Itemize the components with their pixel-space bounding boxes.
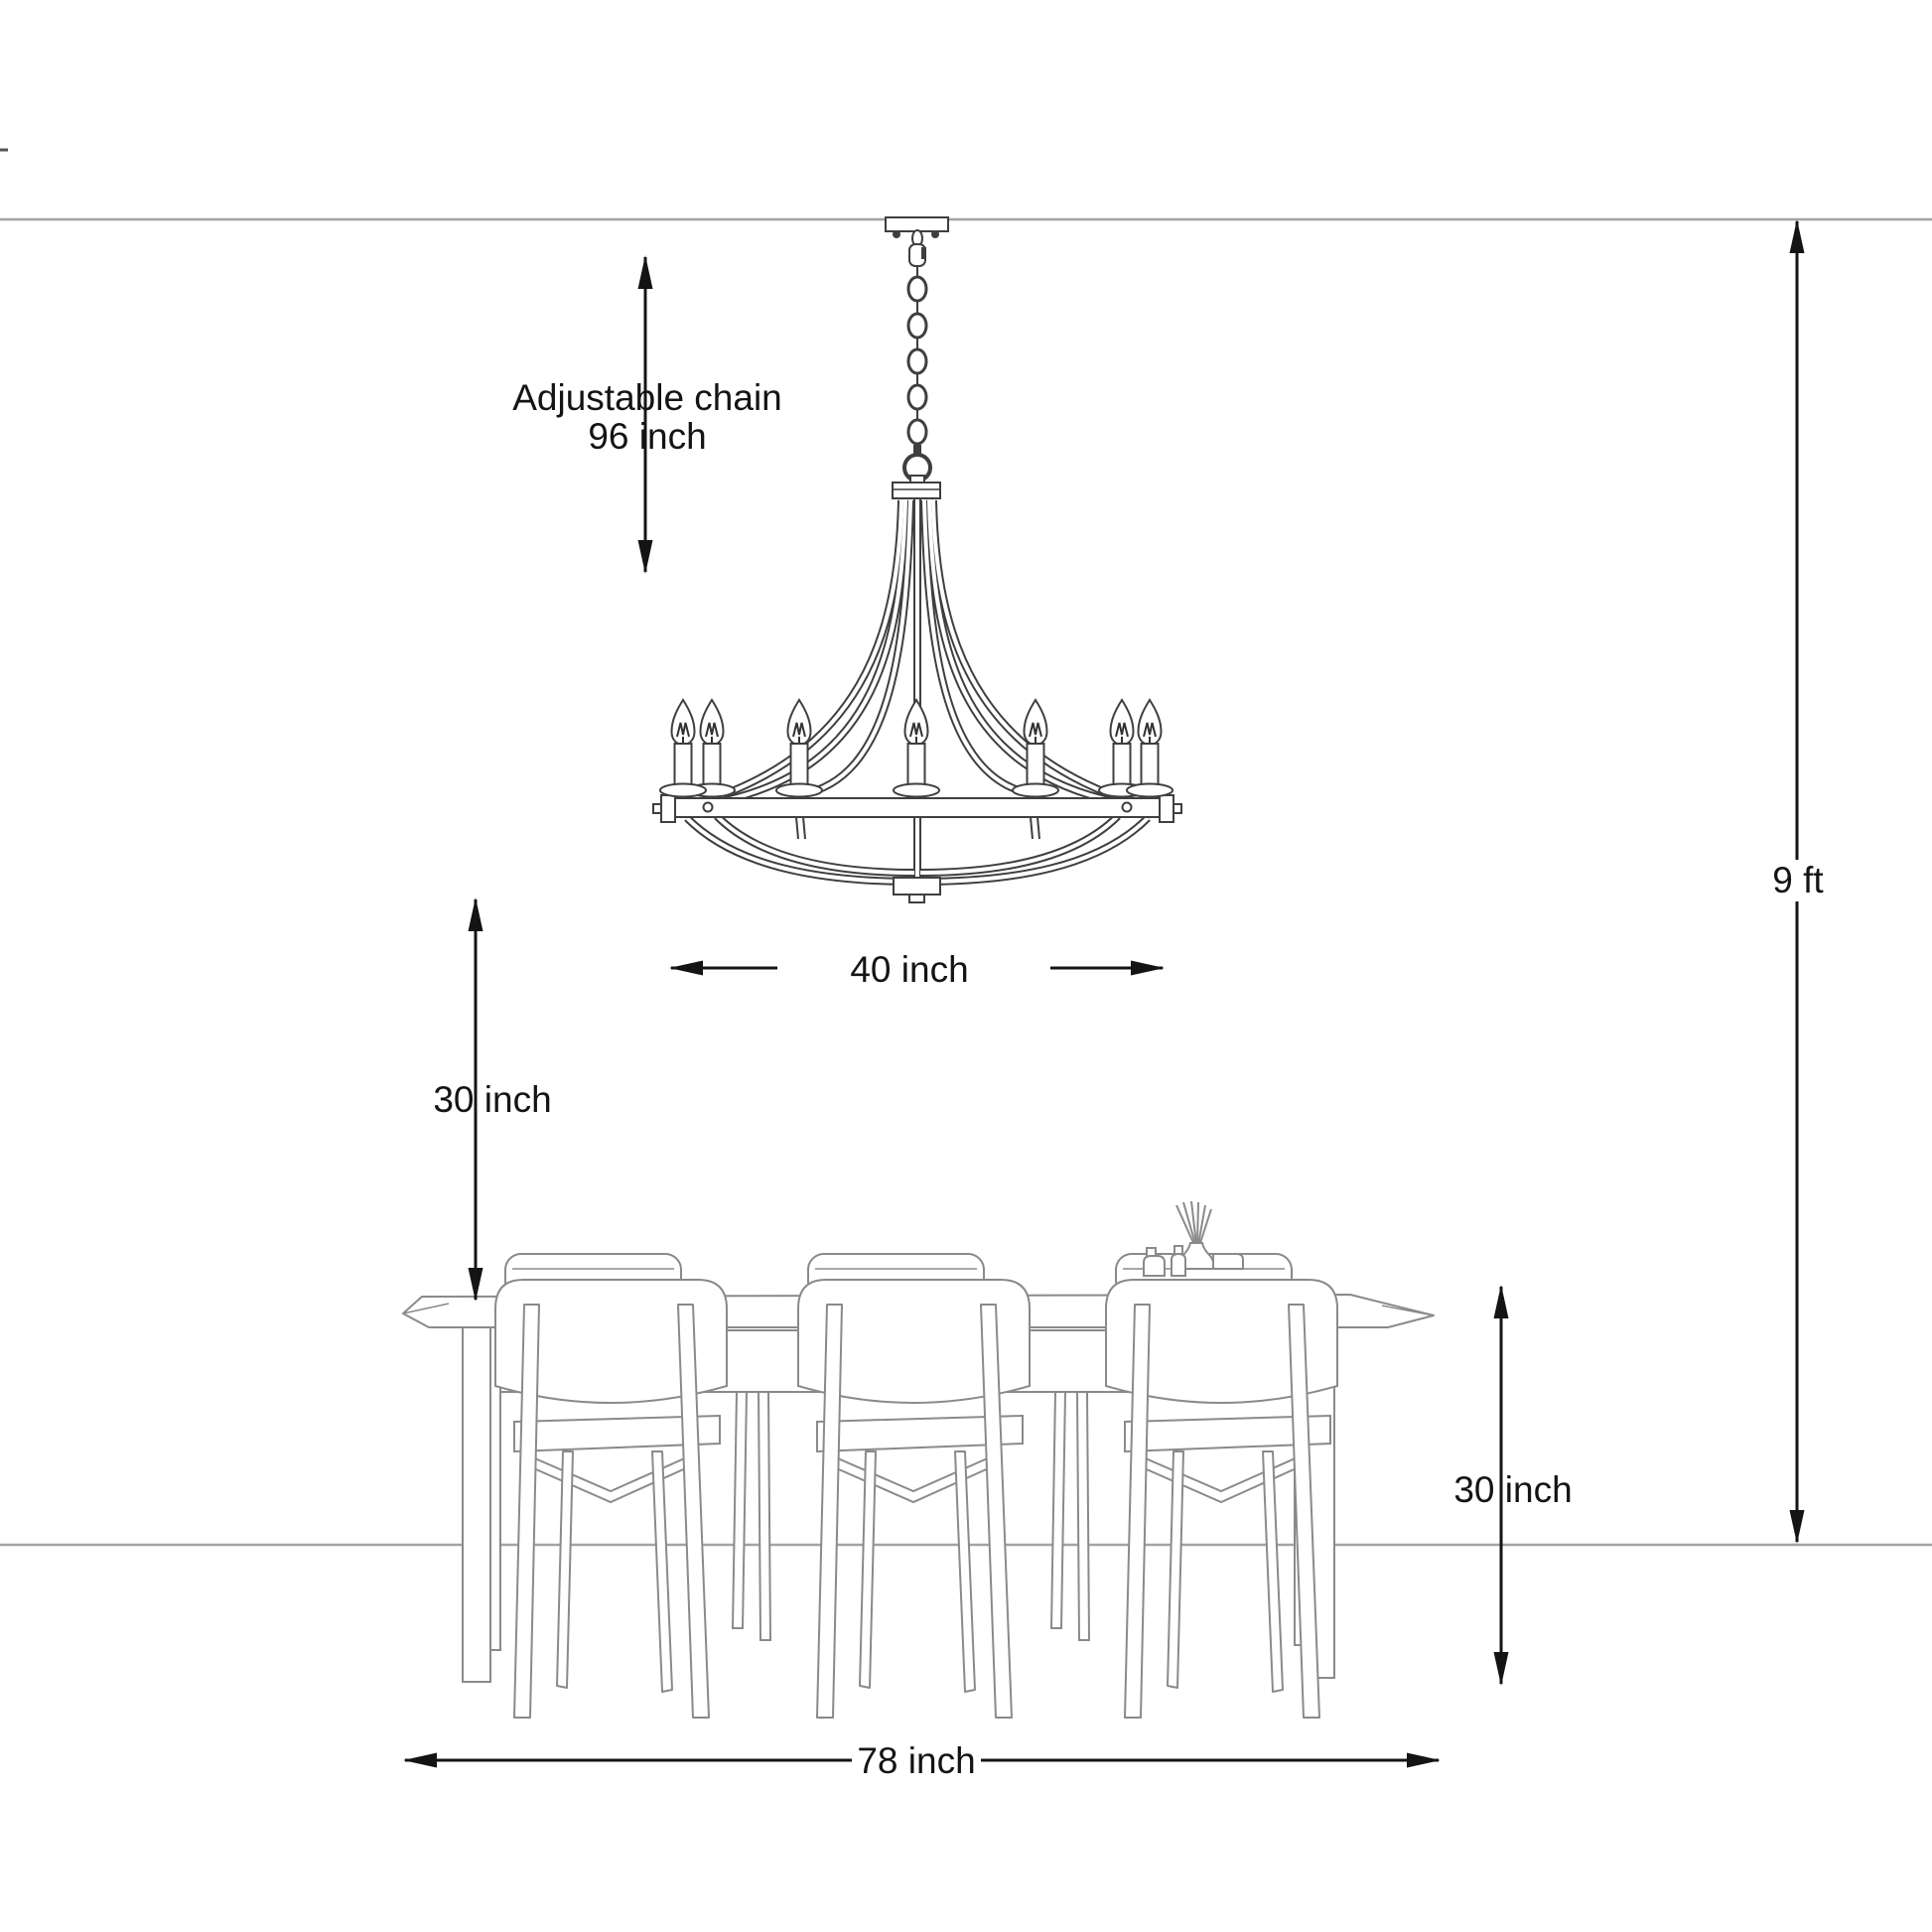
chandelier-finial	[894, 878, 940, 902]
chandelier-hanging-hardware	[886, 217, 948, 498]
candle-light	[660, 700, 706, 797]
reed-diffuser-sticks	[1176, 1201, 1211, 1246]
table-height-label: 30 inch	[1453, 1469, 1572, 1510]
candle-light	[894, 700, 939, 797]
candle-light	[1127, 700, 1173, 797]
decor-bottle	[1144, 1248, 1165, 1276]
chair-right	[1106, 1254, 1337, 1718]
chandelier-candles	[660, 700, 1173, 797]
far-chair-legs	[733, 1392, 770, 1640]
chain-links	[908, 277, 926, 444]
top-cap	[893, 483, 940, 498]
table-length-label: 78 inch	[857, 1740, 975, 1781]
chain-label-line1: Adjustable chain	[512, 377, 782, 418]
decor-bottle	[1172, 1246, 1185, 1276]
ceiling-height-label: 9 ft	[1772, 860, 1824, 900]
far-chair-legs	[1051, 1392, 1089, 1640]
table-decor	[1144, 1201, 1243, 1276]
chair-left	[495, 1254, 727, 1718]
chair-center	[798, 1254, 1030, 1718]
decor-tray	[1213, 1254, 1243, 1269]
dining-set	[403, 1201, 1434, 1718]
candle-light	[689, 700, 735, 797]
dimension-diagram: Adjustable chain 96 inch 40 inch 30 inch…	[0, 0, 1932, 1932]
chandelier	[653, 217, 1181, 902]
fixture-width-label: 40 inch	[850, 949, 968, 990]
clearance-label: 30 inch	[433, 1079, 551, 1120]
ceiling-canopy	[886, 217, 948, 231]
dimension-annotations: Adjustable chain 96 inch 40 inch 30 inch…	[403, 219, 1837, 1781]
candle-light	[1099, 700, 1145, 797]
chain-label-line2: 96 inch	[588, 416, 706, 457]
